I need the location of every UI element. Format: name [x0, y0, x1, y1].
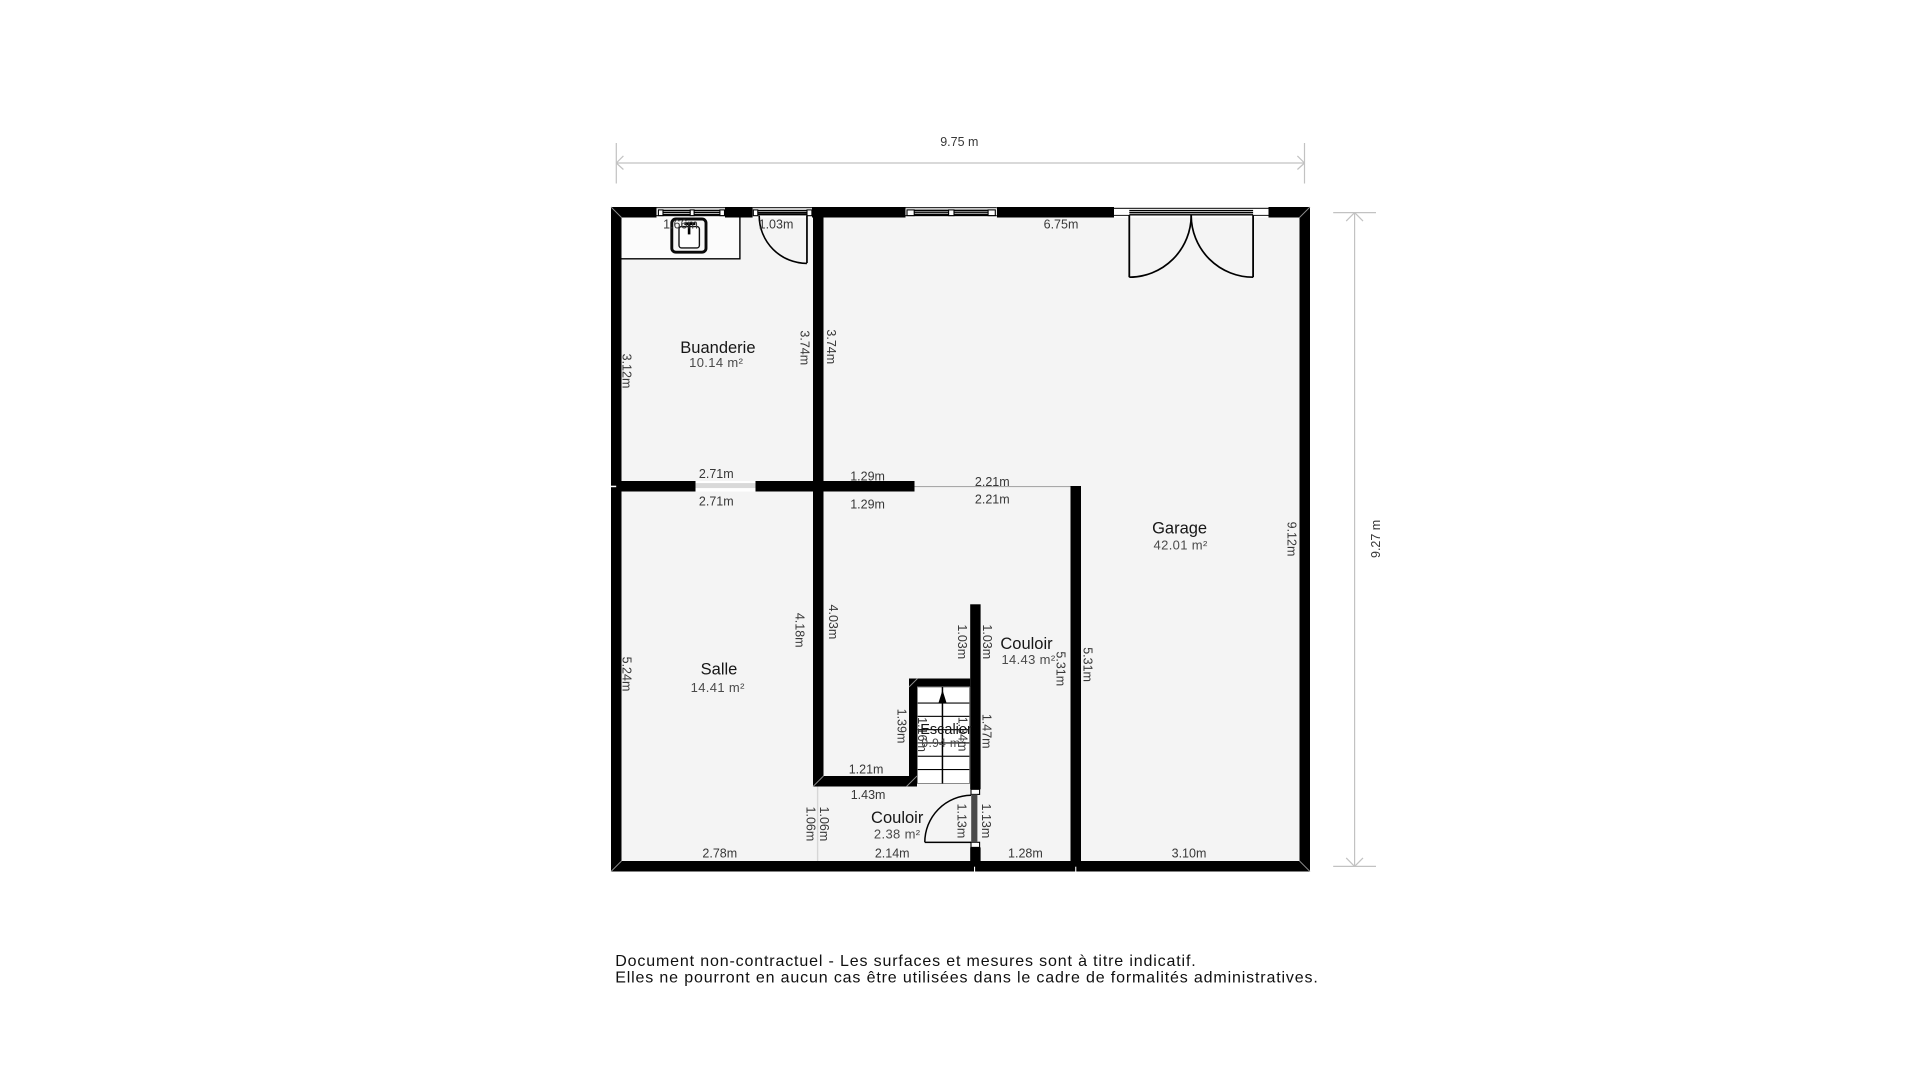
- svg-text:3.74m: 3.74m: [824, 329, 838, 364]
- svg-text:3.74m: 3.74m: [797, 330, 811, 365]
- svg-text:1.39m: 1.39m: [895, 709, 909, 744]
- svg-text:2.78m: 2.78m: [702, 847, 737, 861]
- svg-text:6.75m: 6.75m: [1044, 218, 1079, 232]
- svg-text:1.29m: 1.29m: [850, 469, 885, 483]
- svg-text:1.03m: 1.03m: [759, 218, 794, 232]
- svg-text:1.06m: 1.06m: [804, 807, 818, 842]
- svg-text:10.14 m²: 10.14 m²: [689, 355, 743, 370]
- svg-text:2.71m: 2.71m: [699, 467, 734, 481]
- svg-text:1.13m: 1.13m: [979, 804, 993, 839]
- svg-text:Garage: Garage: [1152, 520, 1207, 538]
- svg-text:1.03m: 1.03m: [955, 624, 969, 659]
- svg-text:9.12m: 9.12m: [1284, 522, 1298, 557]
- svg-text:Couloir: Couloir: [1000, 635, 1053, 653]
- svg-text:Elles ne pourront en aucun cas: Elles ne pourront en aucun cas être util…: [615, 969, 1318, 986]
- svg-text:Salle: Salle: [701, 661, 738, 679]
- svg-text:5.31m: 5.31m: [1081, 647, 1095, 682]
- svg-text:2.71m: 2.71m: [699, 495, 734, 509]
- svg-text:2.38 m²: 2.38 m²: [874, 827, 921, 842]
- svg-text:Couloir: Couloir: [871, 809, 924, 827]
- svg-text:1.28m: 1.28m: [1008, 847, 1043, 861]
- svg-text:42.01 m²: 42.01 m²: [1154, 538, 1208, 553]
- svg-text:1.03m: 1.03m: [980, 624, 994, 659]
- svg-text:4.18m: 4.18m: [793, 613, 807, 648]
- svg-text:9.27 m: 9.27 m: [1369, 520, 1383, 558]
- svg-text:14.41 m²: 14.41 m²: [691, 680, 745, 695]
- svg-text:4.03m: 4.03m: [826, 605, 840, 640]
- svg-text:3.12m: 3.12m: [619, 354, 633, 389]
- svg-text:1.06m: 1.06m: [817, 807, 831, 842]
- svg-text:0.94 m²: 0.94 m²: [921, 736, 964, 750]
- svg-text:2.21m: 2.21m: [975, 492, 1010, 506]
- svg-text:3.10m: 3.10m: [1172, 847, 1207, 861]
- svg-text:9.75 m: 9.75 m: [940, 135, 978, 149]
- svg-text:1.13m: 1.13m: [954, 804, 968, 839]
- svg-text:1.43m: 1.43m: [851, 788, 886, 802]
- svg-text:14.43 m²: 14.43 m²: [1001, 652, 1055, 667]
- svg-text:2.14m: 2.14m: [875, 846, 910, 860]
- svg-text:1.47m: 1.47m: [979, 714, 993, 749]
- svg-text:1.66m: 1.66m: [663, 218, 698, 232]
- svg-text:1.29m: 1.29m: [850, 497, 885, 511]
- svg-text:2.21m: 2.21m: [975, 475, 1010, 489]
- svg-text:5.31m: 5.31m: [1054, 651, 1068, 686]
- svg-text:Document non-contractuel - Les: Document non-contractuel - Les surfaces …: [615, 953, 1196, 970]
- svg-text:5.24m: 5.24m: [620, 657, 634, 692]
- svg-text:1.21m: 1.21m: [849, 762, 884, 776]
